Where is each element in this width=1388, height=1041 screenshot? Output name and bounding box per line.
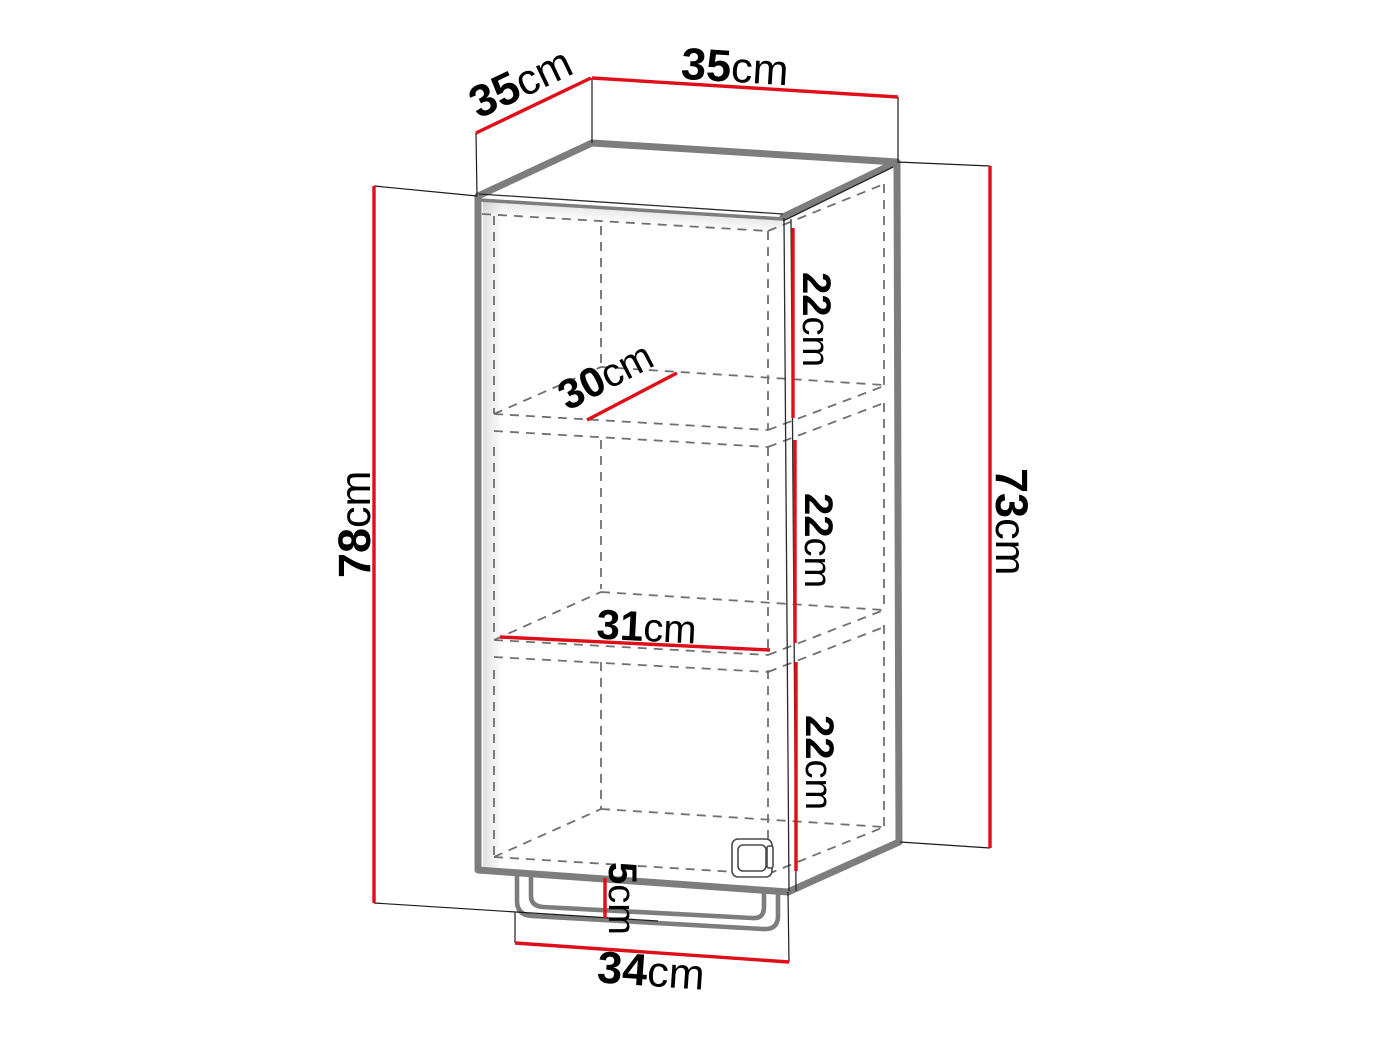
label-base-height: 5cm — [600, 862, 644, 935]
dimension-labels: 35cm 35cm 78cm 73cm 22cm 22cm 22cm 30cm … — [329, 36, 1037, 1000]
label-base-width: 34cm — [596, 941, 707, 999]
dimension-diagram: 35cm 35cm 78cm 73cm 22cm 22cm 22cm 30cm … — [0, 0, 1388, 1041]
label-width: 35cm — [680, 38, 790, 95]
label-depth: 35cm — [461, 36, 580, 128]
left-inner-shadow — [483, 200, 503, 868]
hinge-tab — [767, 846, 773, 868]
label-height-total: 78cm — [329, 471, 380, 578]
label-section-top: 22cm — [794, 272, 838, 367]
cabinet-diagram-svg: 35cm 35cm 78cm 73cm 22cm 22cm 22cm 30cm … — [0, 0, 1388, 1041]
inner-shadows — [482, 199, 784, 868]
hinge-detail — [732, 839, 773, 877]
label-height-side: 73cm — [986, 468, 1037, 575]
hinge-inner — [738, 845, 766, 871]
label-section-bottom: 22cm — [797, 715, 841, 810]
label-shelf-depth: 30cm — [550, 331, 660, 419]
label-section-middle: 22cm — [796, 493, 840, 588]
label-shelf-width: 31cm — [596, 601, 698, 653]
